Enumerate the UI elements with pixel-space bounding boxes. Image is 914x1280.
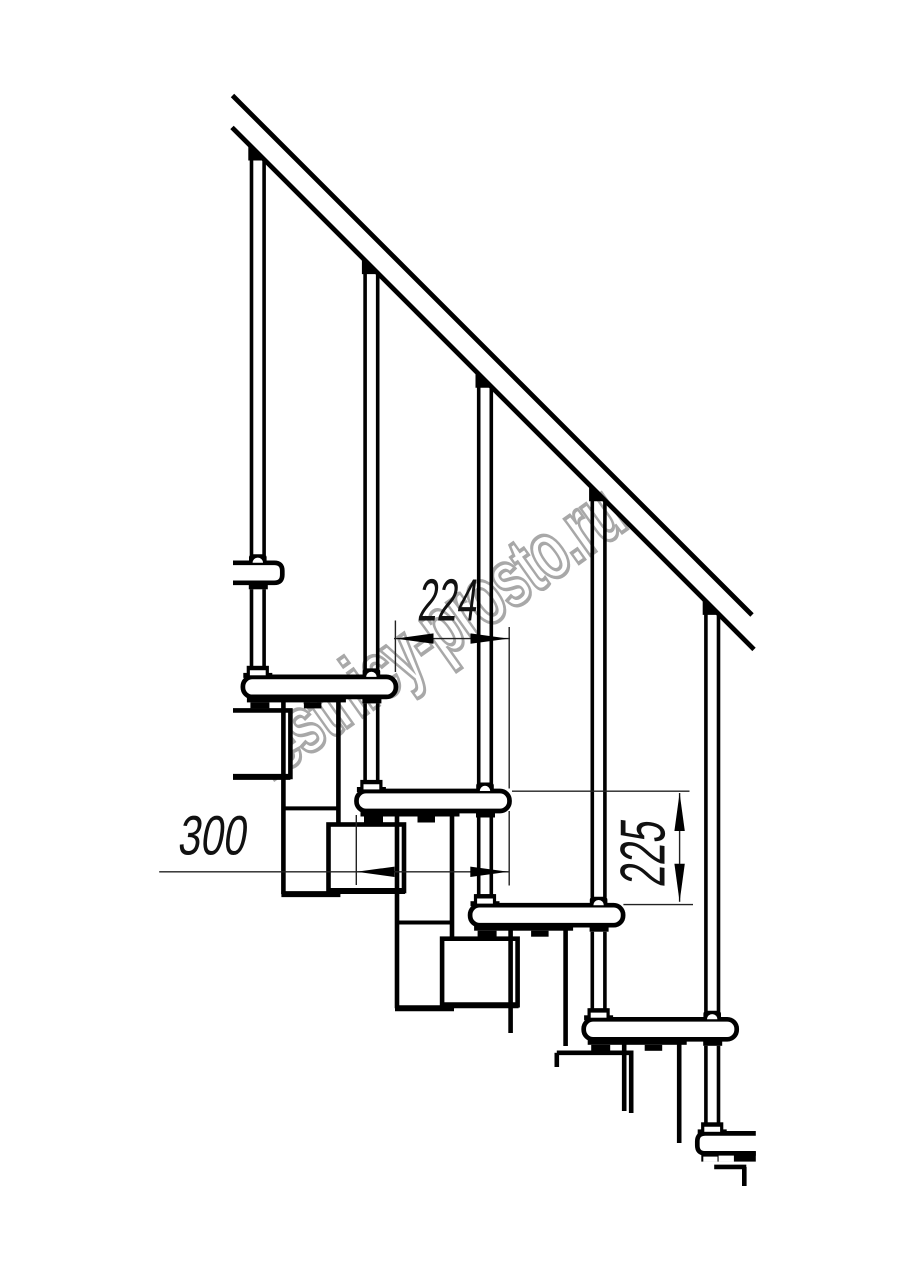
svg-text:224: 224 [415,567,482,634]
svg-text:300: 300 [175,806,253,867]
svg-text:225: 225 [608,815,679,890]
